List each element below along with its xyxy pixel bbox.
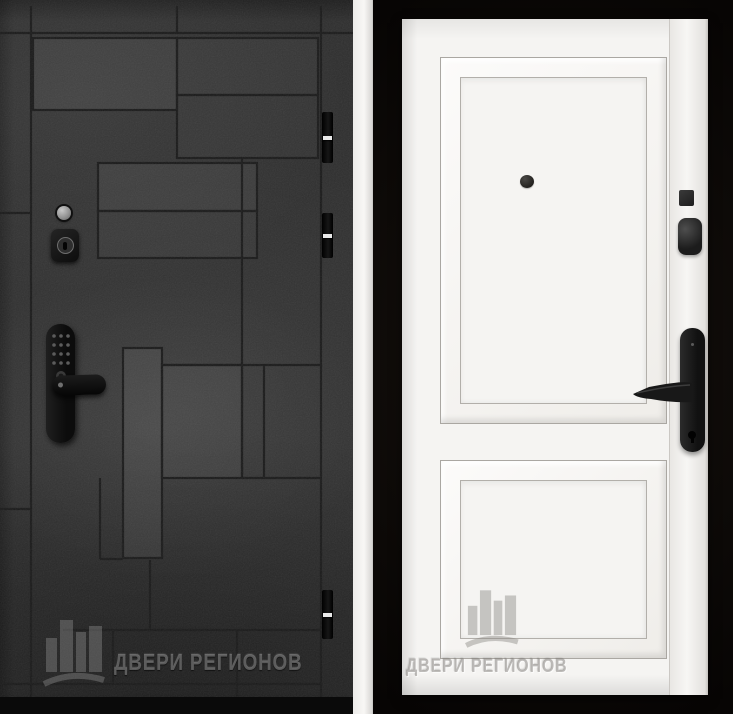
peephole-icon — [520, 175, 534, 188]
brand-logo-icon — [462, 580, 522, 654]
door-catalog-image: ДВЕРИ РЕГИОНОВ — [0, 0, 733, 714]
keyhole-slot — [63, 242, 67, 250]
smart-lock-lever-handle — [52, 374, 107, 395]
wall-strip — [353, 0, 373, 714]
upper-panel-center — [460, 77, 647, 404]
hinge-middle-icon — [322, 213, 333, 258]
keyhole-icon — [688, 431, 696, 439]
lever-highlight — [58, 382, 63, 387]
hinge-top-icon — [322, 112, 333, 163]
keyhole-cylinder-icon — [51, 229, 79, 262]
watermark-text: ДВЕРИ РЕГИОНОВ — [114, 649, 302, 676]
white-door — [402, 19, 708, 695]
watermark-text: ДВЕРИ РЕГИОНОВ — [406, 656, 568, 678]
brand-logo-icon — [42, 608, 106, 694]
floor-shadow — [0, 697, 353, 714]
deadbolt-cylinder-icon — [678, 218, 702, 255]
white-door-photo: ДВЕРИ РЕГИОНОВ — [373, 0, 733, 714]
peephole-icon — [57, 206, 71, 220]
watermark-left: ДВЕРИ РЕГИОНОВ — [42, 608, 344, 694]
dark-door: ДВЕРИ РЕГИОНОВ — [0, 0, 353, 714]
dark-door-photo: ДВЕРИ РЕГИОНОВ — [0, 0, 373, 714]
lever-handle-icon — [627, 374, 702, 414]
upper-raised-panel — [440, 57, 667, 424]
latch-square-icon — [679, 190, 694, 206]
backplate-screw — [691, 343, 694, 346]
